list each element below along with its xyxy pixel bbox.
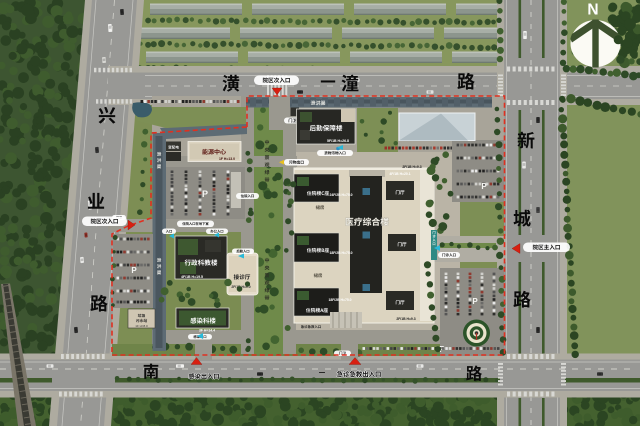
svg-text:4F/1B H=20.1: 4F/1B H=20.1	[389, 172, 410, 176]
svg-text:2F/1B H=9.3: 2F/1B H=9.3	[396, 317, 415, 321]
svg-text:N: N	[587, 2, 598, 19]
svg-text:18F/2B H=75.0: 18F/2B H=75.0	[329, 251, 352, 255]
svg-text:1F H=8.0: 1F H=8.0	[135, 324, 148, 328]
svg-text:5F/1B H=26.8: 5F/1B H=26.8	[327, 139, 349, 143]
svg-text:1F H=13.0: 1F H=13.0	[219, 157, 235, 161]
svg-text:P: P	[131, 266, 137, 275]
svg-text:3F H=14.4: 3F H=14.4	[199, 329, 215, 333]
svg-text:P: P	[481, 182, 487, 191]
svg-text:P: P	[202, 189, 208, 199]
svg-text:P: P	[472, 297, 478, 306]
svg-text:18F/2B H=75.0: 18F/2B H=75.0	[328, 298, 351, 302]
svg-text:4F/1B H=19.5: 4F/1B H=19.5	[181, 275, 203, 279]
svg-text:24F/2B H=75.0: 24F/2B H=75.0	[329, 193, 352, 197]
svg-text:2F/1B H=9.3: 2F/1B H=9.3	[402, 165, 421, 169]
